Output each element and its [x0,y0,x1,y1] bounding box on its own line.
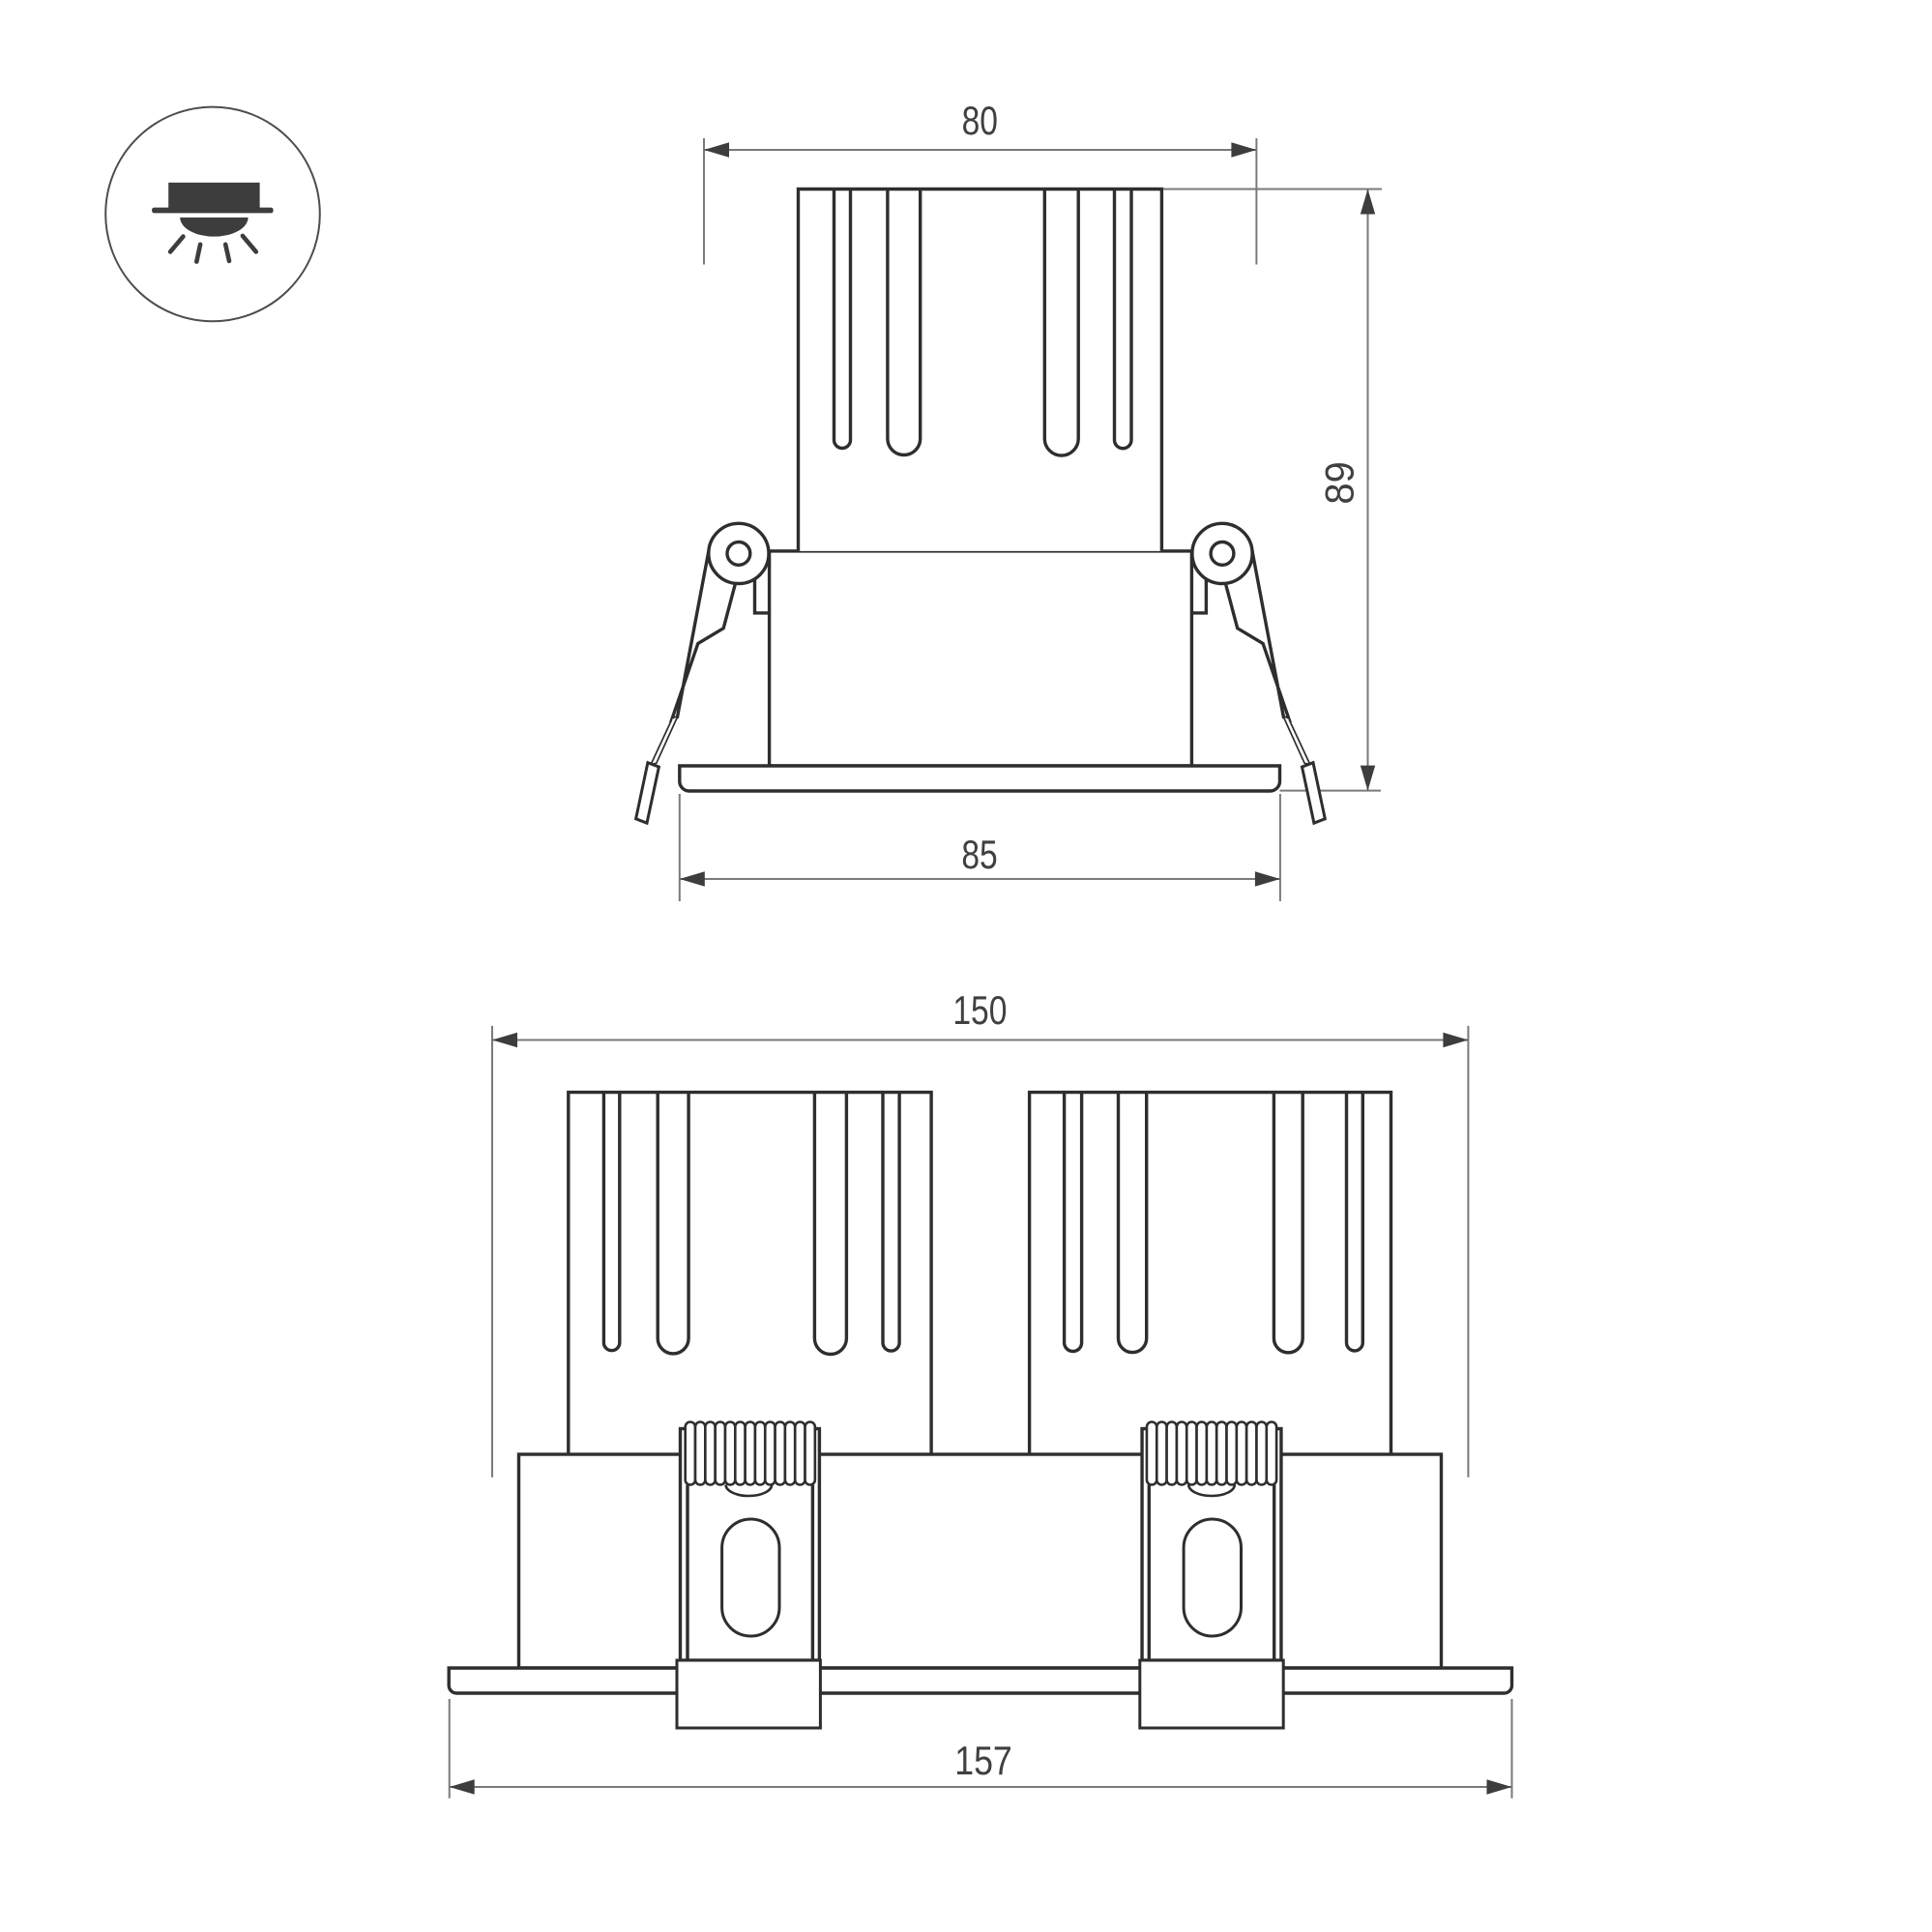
svg-text:157: 157 [954,1739,1012,1783]
svg-text:85: 85 [961,833,997,877]
svg-text:150: 150 [952,989,1007,1034]
svg-text:89: 89 [1317,461,1362,504]
svg-text:80: 80 [962,99,998,143]
